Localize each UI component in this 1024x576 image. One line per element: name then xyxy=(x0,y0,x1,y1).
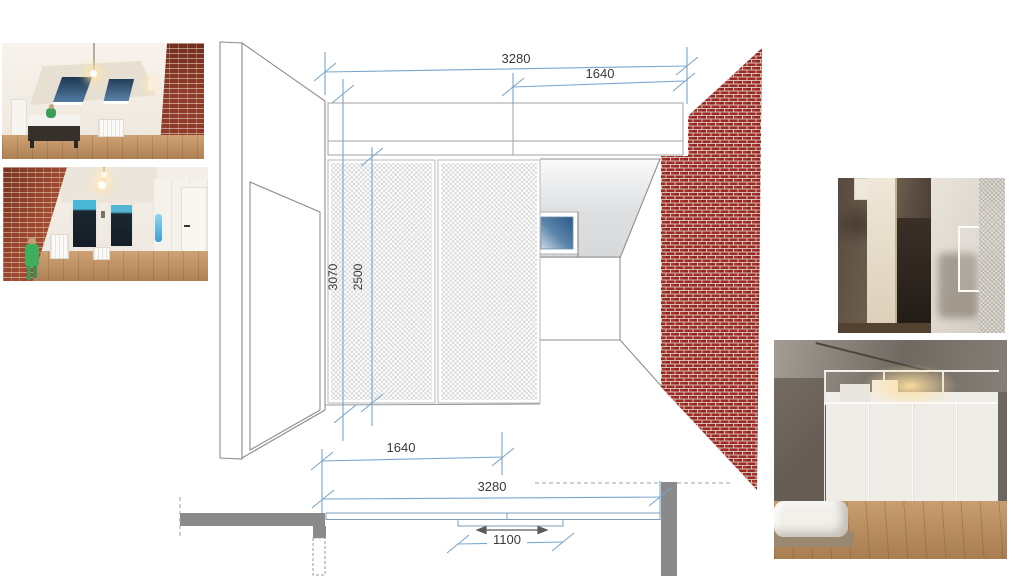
pendant-bulb-upper xyxy=(101,172,107,178)
plan-sliding-doors xyxy=(326,513,660,526)
radiator xyxy=(98,119,124,137)
plan-left-wall xyxy=(180,513,325,526)
floor-line xyxy=(325,404,540,405)
concrete-wall-right xyxy=(998,392,1007,504)
radiator-left xyxy=(50,234,69,259)
photo-partition-bedroom xyxy=(774,340,1007,559)
label-partition-height: 2500 xyxy=(351,263,365,290)
mesh-panel-right xyxy=(438,160,540,403)
label-wall-height: 3070 xyxy=(326,263,340,290)
plan-view xyxy=(180,482,732,576)
photo-brick-room xyxy=(3,167,208,281)
label-plan-half-width: 1640 xyxy=(387,440,416,455)
person-on-bed xyxy=(46,108,56,118)
label-plan-door-width: 1100 xyxy=(493,532,521,547)
wall-sconce xyxy=(148,81,153,90)
window-right xyxy=(109,203,134,248)
concrete-wall-left xyxy=(774,378,826,512)
label-elevation-total-width: 3280 xyxy=(502,51,531,66)
floor-sliver xyxy=(838,323,931,333)
sloped-ceiling xyxy=(540,159,663,388)
mesh-screen xyxy=(979,178,1005,333)
plan-dashed-lines xyxy=(180,483,732,537)
brick-column xyxy=(160,43,204,145)
mesh-panel-left xyxy=(328,160,435,403)
slide-canvas: 3280 1640 3070 2500 1640 3280 1100 xyxy=(0,0,1024,576)
pendant-cord xyxy=(93,43,95,72)
pendant-bulb xyxy=(90,70,97,77)
skylight-window-right xyxy=(103,79,134,104)
dark-doorway xyxy=(897,218,931,333)
bed xyxy=(28,115,80,149)
photo-concrete-closet xyxy=(838,178,1005,333)
frosted-partition xyxy=(824,402,999,504)
photo-attic-bedroom xyxy=(2,43,204,159)
intercom xyxy=(101,211,105,218)
plan-wall-dashed-stub xyxy=(313,538,325,575)
plan-right-wall xyxy=(661,482,677,576)
radiator-center xyxy=(93,247,110,260)
label-plan-total-width: 3280 xyxy=(478,479,507,494)
door-handle xyxy=(184,225,190,227)
window-glass xyxy=(541,217,573,249)
door-opening xyxy=(250,182,320,450)
bed-duvet xyxy=(774,501,848,537)
blue-sticker xyxy=(155,214,162,242)
cream-panel xyxy=(867,178,897,333)
label-elevation-half-width: 1640 xyxy=(586,66,615,81)
window-left xyxy=(71,198,98,249)
child-figure xyxy=(25,237,39,281)
loft-band xyxy=(328,103,683,155)
pendant-bulb-lower xyxy=(98,181,106,189)
roof-window xyxy=(536,212,578,257)
